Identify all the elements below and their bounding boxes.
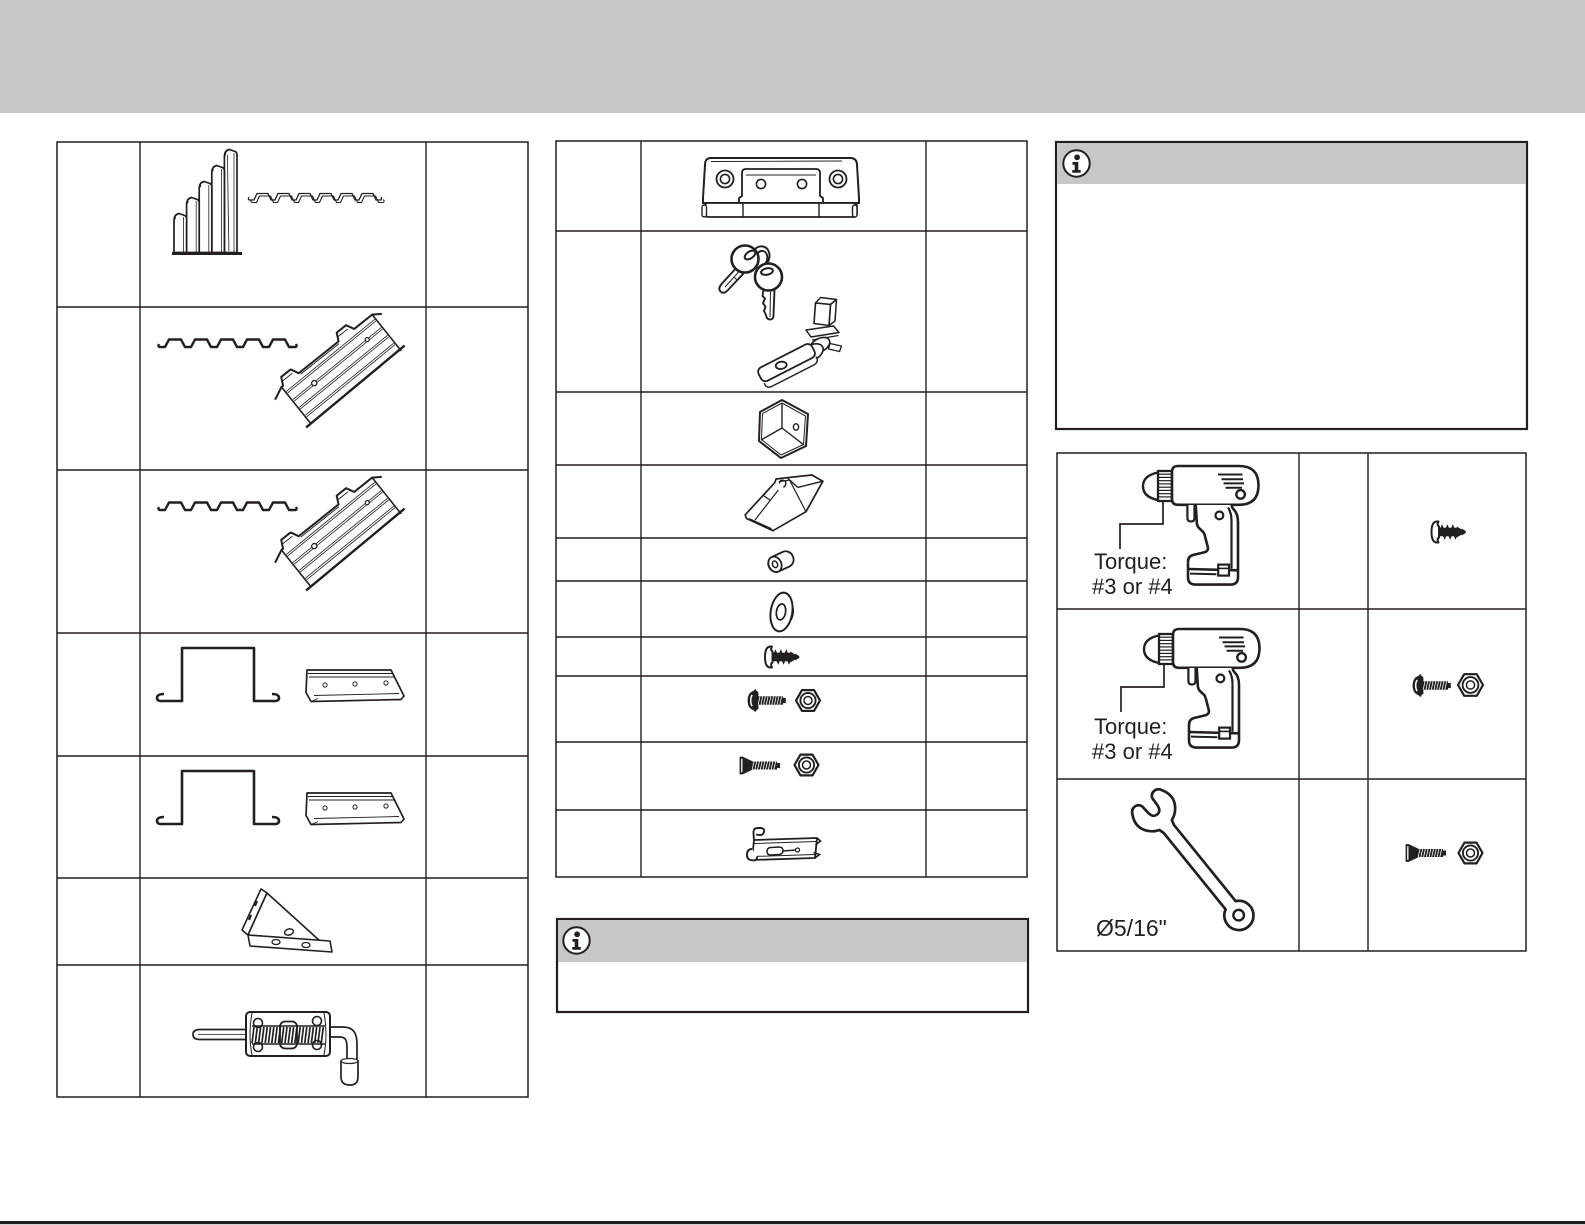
svg-text:#3 or #4: #3 or #4 bbox=[1092, 574, 1173, 599]
svg-text:#3 or #4: #3 or #4 bbox=[1092, 739, 1173, 764]
svg-text:Torque:: Torque: bbox=[1094, 549, 1167, 574]
svg-text:Ø5/16": Ø5/16" bbox=[1096, 915, 1167, 941]
svg-text:Torque:: Torque: bbox=[1094, 714, 1167, 739]
